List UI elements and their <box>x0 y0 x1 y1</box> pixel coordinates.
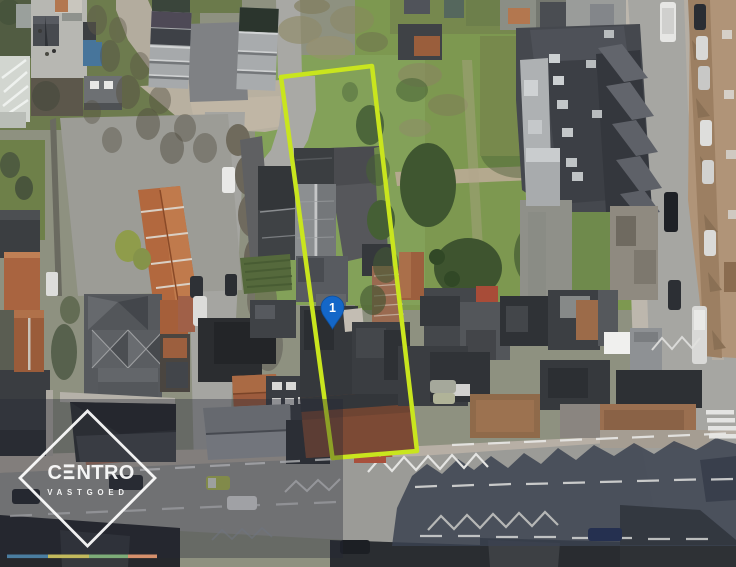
svg-text:NTRO: NTRO <box>77 462 135 484</box>
svg-text:VASTGOED: VASTGOED <box>47 488 129 497</box>
svg-text:C: C <box>48 462 62 484</box>
svg-text:1: 1 <box>329 301 336 315</box>
